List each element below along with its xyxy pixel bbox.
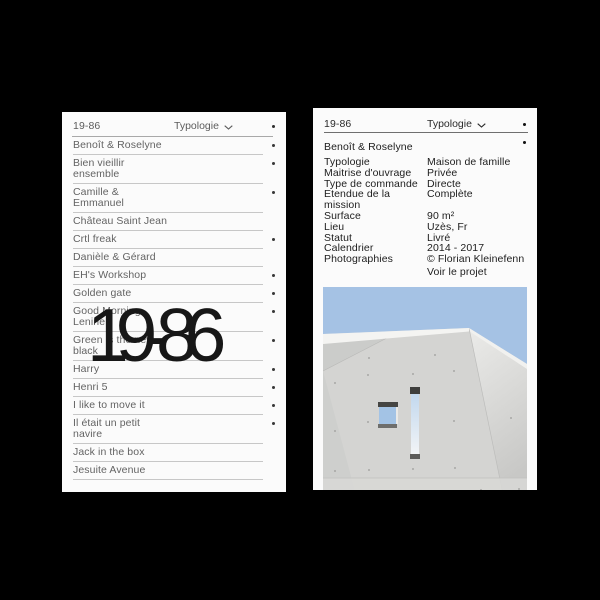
list-item[interactable]: Danièle & Gérard: [62, 249, 286, 267]
detail-label: Maitrise d'ouvrage: [324, 168, 427, 179]
detail-row: Maitrise d'ouvragePrivée: [324, 168, 528, 179]
list-item[interactable]: EH's Workshop: [62, 267, 286, 285]
list-item-bullet: [272, 144, 275, 147]
list-item-label: EH's Workshop: [73, 270, 256, 281]
project-detail-panel: 19-86 Typologie Benoît & Roselyne Typolo…: [313, 108, 537, 490]
project-title-bullet: [523, 141, 526, 144]
list-item[interactable]: Henri 5: [62, 379, 286, 397]
list-item-bullet: [272, 292, 275, 295]
list-item[interactable]: Crtl freak: [62, 231, 286, 249]
project-list-panel: 19-86 Typologie Benoît & Roselyne Bien v…: [62, 112, 286, 492]
list-item-bullet: [272, 238, 275, 241]
list-item-label: Bien vieillir ensemble: [73, 158, 256, 180]
detail-label: Etendue de la mission: [324, 189, 427, 211]
detail-row: LieuUzès, Fr: [324, 222, 528, 233]
project-details: TypologieMaison de famille Maitrise d'ou…: [313, 157, 537, 278]
list-item-bullet: [272, 339, 275, 342]
list-item[interactable]: Benoît & Roselyne: [62, 137, 286, 155]
list-item-label: Camille & Emmanuel: [73, 187, 256, 209]
list-item[interactable]: Harry: [62, 361, 286, 379]
list-item[interactable]: Château Saint Jean: [62, 213, 286, 231]
list-item-label: Harry: [73, 364, 256, 375]
project-title: Benoît & Roselyne: [324, 141, 413, 153]
slot-window: [410, 387, 420, 459]
detail-value: Complète: [427, 189, 528, 211]
list-item-label: Crtl freak: [73, 234, 256, 245]
header-bullet: [272, 125, 275, 128]
list-item-bullet: [272, 162, 275, 165]
view-project-link[interactable]: Voir le projet: [427, 267, 528, 278]
list-item-label: Il était un petit navire: [73, 418, 256, 440]
detail-label: Lieu: [324, 222, 427, 233]
detail-value: Uzès, Fr: [427, 222, 528, 233]
list-item[interactable]: Jesuite Avenue: [62, 462, 286, 480]
typologie-dropdown[interactable]: Typologie: [174, 121, 233, 132]
list-item-label: Good Morning Lenine: [73, 306, 256, 328]
detail-value: © Florian Kleinefenn: [427, 254, 528, 265]
brand-logo[interactable]: 19-86: [324, 119, 351, 130]
list-item[interactable]: Green is the new black: [62, 332, 286, 361]
list-item[interactable]: Il était un petit navire: [62, 415, 286, 444]
list-item-label: I like to move it: [73, 400, 256, 411]
list-item-bullet: [272, 274, 275, 277]
detail-row: Surface90 m²: [324, 211, 528, 222]
detail-label: Photographies: [324, 254, 427, 265]
list-item[interactable]: Good Morning Lenine: [62, 303, 286, 332]
page-background: 19-86 Typologie Benoît & Roselyne Bien v…: [0, 0, 600, 600]
list-item-bullet: [272, 310, 275, 313]
project-list: Benoît & Roselyne Bien vieillir ensemble…: [62, 137, 286, 480]
detail-row: Photographies© Florian Kleinefenn: [324, 254, 528, 265]
list-item-label: Jack in the box: [73, 447, 256, 458]
chevron-down-icon: [224, 125, 233, 130]
square-window: [378, 402, 398, 428]
typologie-dropdown-label: Typologie: [174, 121, 219, 132]
list-item[interactable]: Camille & Emmanuel: [62, 184, 286, 213]
list-item-bullet: [272, 404, 275, 407]
list-item-bullet: [272, 422, 275, 425]
typologie-dropdown-label: Typologie: [427, 119, 472, 130]
list-item-bullet: [272, 191, 275, 194]
list-item-bullet: [272, 368, 275, 371]
list-item-bullet: [272, 386, 275, 389]
list-item[interactable]: Bien vieillir ensemble: [62, 155, 286, 184]
chevron-down-icon: [477, 123, 486, 128]
concrete-house-illustration: [323, 287, 527, 490]
list-item-label: Golden gate: [73, 288, 256, 299]
project-title-row[interactable]: Benoît & Roselyne: [313, 133, 537, 155]
list-panel-header: 19-86 Typologie: [62, 112, 286, 137]
list-item[interactable]: Golden gate: [62, 285, 286, 303]
brand-logo[interactable]: 19-86: [73, 121, 100, 132]
project-photo: [323, 287, 527, 490]
list-item-label: Henri 5: [73, 382, 256, 393]
detail-row: Voir le projet: [324, 267, 528, 278]
detail-label: [324, 267, 427, 278]
list-item-label: Green is the new black: [73, 335, 256, 357]
detail-row: Etendue de la missionComplète: [324, 189, 528, 211]
detail-panel-header: 19-86 Typologie: [313, 108, 537, 133]
list-item-label: Jesuite Avenue: [73, 465, 256, 476]
detail-value: Privée: [427, 168, 528, 179]
list-item-label: Danièle & Gérard: [73, 252, 256, 263]
list-item-label: Château Saint Jean: [73, 216, 256, 227]
list-item[interactable]: Jack in the box: [62, 444, 286, 462]
header-bullet: [523, 123, 526, 126]
list-item-label: Benoît & Roselyne: [73, 140, 256, 151]
typologie-dropdown[interactable]: Typologie: [427, 119, 486, 130]
list-item[interactable]: I like to move it: [62, 397, 286, 415]
